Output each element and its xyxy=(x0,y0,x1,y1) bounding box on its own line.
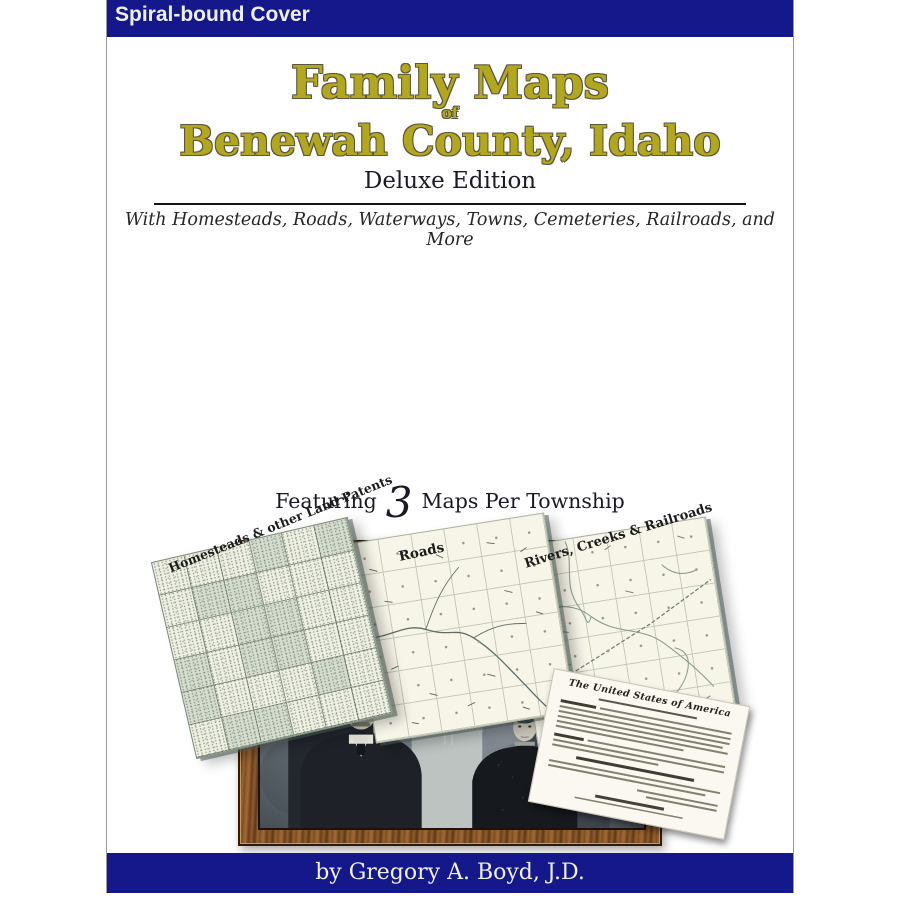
author-bar: by Gregory A. Boyd, J.D. xyxy=(107,853,793,893)
cover-type-banner: Spiral-bound Cover xyxy=(107,0,793,37)
subtitle-text: With Homesteads, Roads, Waterways, Towns… xyxy=(107,210,793,250)
map-samples-zone: Homesteads & other Land Patents Roads Ri… xyxy=(107,255,793,497)
book-cover: Spiral-bound Cover Family Maps of Benewa… xyxy=(106,0,794,893)
author-name: by Gregory A. Boyd, J.D. xyxy=(315,860,585,885)
title-block: Family Maps of Benewah County, Idaho Del… xyxy=(107,60,793,250)
book-title-line2: Benewah County, Idaho xyxy=(107,121,793,162)
featuring-count: 3 xyxy=(386,484,413,522)
book-title-line1: Family Maps xyxy=(107,60,793,105)
featuring-suffix: Maps Per Township xyxy=(422,489,625,513)
cover-type-label: Spiral-bound Cover xyxy=(107,0,793,27)
divider-rule xyxy=(154,203,746,205)
product-image-page: Spiral-bound Cover Family Maps of Benewa… xyxy=(0,0,900,900)
edition-label: Deluxe Edition xyxy=(107,169,793,194)
